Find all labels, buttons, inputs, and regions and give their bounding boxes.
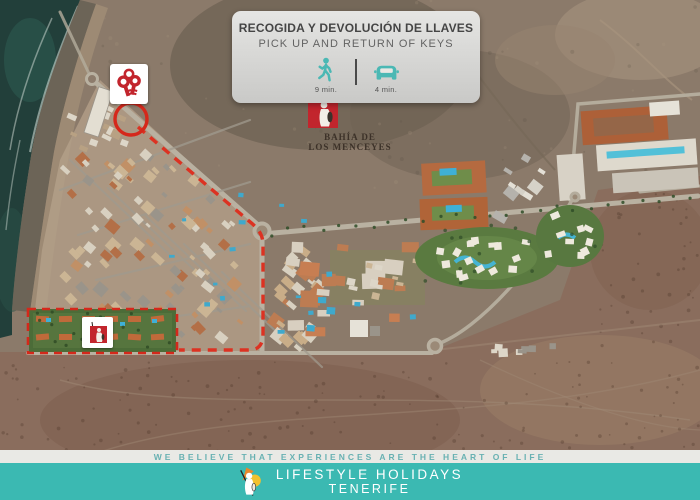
map-art [501,50,503,52]
map-art [409,403,411,405]
map-art [443,229,447,233]
map-art [160,62,163,65]
map-art [463,407,465,409]
map-art [494,242,502,250]
map-art [359,395,361,397]
map-art [238,377,240,379]
map-art [500,446,503,449]
map-art [354,302,360,307]
map-art [102,45,105,48]
map-art [445,362,448,365]
walk-time: 9 min. [315,85,337,94]
map-art [690,290,692,292]
map-art [602,249,604,251]
map-art [238,193,243,198]
map-art [508,265,517,273]
map-art [361,362,364,365]
car-icon [373,62,400,82]
map-art [578,383,581,386]
map-art [610,305,612,307]
map-art [389,314,400,322]
map-art [314,399,318,403]
map-art [638,436,642,440]
map-art [128,334,141,341]
map-art [314,384,318,388]
map-art [57,427,61,431]
map-art [520,442,523,445]
map-art [239,220,246,224]
map-art [505,401,508,404]
map-art [171,376,173,378]
brand-strip: LIFESTYLE HOLIDAYS TENERIFE [0,463,700,500]
map-art [400,157,404,161]
map-art [302,425,304,427]
map-art [586,396,588,398]
map-art [122,326,125,329]
map-art [641,289,644,292]
map-art [518,349,527,354]
map-art [129,409,132,412]
map-art [611,385,614,388]
map-art [683,446,685,448]
map-art [218,164,220,166]
map-art [673,402,675,404]
map-art [623,443,625,445]
map-art [302,225,305,228]
map-art [50,323,53,326]
map-art [455,213,458,216]
map-art [286,425,290,429]
map-art [67,379,69,381]
map-art [685,216,688,219]
map-art [227,410,230,413]
map-art [626,311,629,314]
map-art [638,232,641,235]
map-art [535,61,539,65]
map-art [130,312,133,315]
map-art [550,147,553,150]
map-art [377,395,380,398]
map-art [677,324,679,326]
map-art [124,368,128,372]
map-art [322,392,324,394]
warrior-logo-mini-icon [87,321,109,345]
map-art [478,252,482,256]
map-art [502,159,504,161]
map-art [473,270,477,274]
map-art [621,295,625,299]
map-art [326,271,332,276]
map-art [459,281,463,285]
map-art [543,152,545,154]
map-art [394,180,398,184]
map-art [641,332,643,334]
map-art [459,236,463,240]
map-art [697,424,700,427]
map-art [636,43,639,46]
map-art [630,320,634,324]
map-art [668,293,672,297]
map-art [228,430,230,432]
map-art [621,201,624,204]
map-art [47,438,50,441]
map-art [308,406,311,409]
map-art [579,405,582,408]
map-art [649,310,652,313]
card-title-es: RECOGIDA Y DEVOLUCIÓN DE LLAVES [238,21,474,35]
map-art [415,171,419,175]
map-art [279,204,284,207]
map-art [126,393,129,396]
drive-time: 4 min. [375,85,397,94]
map-art [147,430,151,434]
map-art [658,200,661,203]
map-art [332,275,346,286]
map-art [598,434,602,438]
map-art [578,374,581,377]
map-art [382,395,385,398]
map-art [278,426,282,430]
map-art [583,151,585,153]
map-art [386,221,389,224]
map-art [299,261,320,276]
map-art [288,320,304,331]
map-art [152,319,157,323]
map-art [522,429,525,432]
map-art [257,371,261,375]
map-art [339,431,342,434]
keys-pickup-marker [110,64,148,104]
map-art [656,272,660,276]
divider [355,59,357,85]
map-art [20,423,23,426]
walking-icon [315,57,337,82]
map-art [36,387,39,390]
brand-line1: LIFESTYLE HOLIDAYS [276,467,463,482]
map-art [637,263,639,265]
map-art [46,318,51,322]
map-art [263,393,265,395]
map-art [318,297,326,303]
map-art [675,391,678,394]
map-art [120,441,123,444]
map-art [514,226,518,230]
map-art [220,418,223,421]
map-art [36,333,49,340]
map-art [668,374,671,377]
map-art [1,431,4,434]
map-art [241,439,244,442]
map-art [682,267,685,270]
map-art [182,218,186,221]
map-art [148,362,150,364]
map-art [249,406,252,409]
map-art [652,340,655,343]
map-art [599,308,601,310]
map-art [334,421,336,423]
map-art [677,268,680,271]
map-art [429,142,431,144]
map-art [600,344,603,347]
map-art [555,204,558,207]
map-art [630,446,633,449]
map-art [263,435,266,438]
map-art [435,395,438,398]
map-art [408,377,410,379]
map-art [108,60,112,64]
map-art [577,397,580,400]
brand-text: LIFESTYLE HOLIDAYS TENERIFE [276,467,463,496]
map-art [81,419,84,422]
map-art [377,284,383,289]
map-art [593,244,597,248]
map-art [146,345,149,348]
map-art [544,250,552,258]
resort-logo-line1: BAHÍA DE [300,132,400,142]
map-art [539,209,542,212]
map-art [688,197,691,200]
map-art [570,233,574,237]
map-art [301,219,307,223]
map-art [286,226,289,229]
map-art [54,340,57,343]
map-art [59,316,72,322]
map-art [373,226,376,229]
map-art [436,423,438,425]
map-art [38,319,41,322]
map-art [59,334,72,340]
map-art [118,433,120,435]
map-art [658,206,661,209]
map-art [530,269,534,273]
map-art [373,187,375,189]
resort-logo-line2: LOS MENCEYES [300,142,400,152]
map-art [230,384,233,387]
info-card: RECOGIDA Y DEVOLUCIÓN DE LLAVES PICK UP … [232,11,480,103]
map-art [404,218,407,221]
map-art [92,407,94,409]
map-art [488,214,491,217]
map-art [248,432,252,436]
map-art [677,419,679,421]
map-art [625,422,628,425]
map-art [672,195,675,198]
map-art [481,434,484,437]
map-art [692,297,694,299]
map-art [138,387,142,391]
map-art [310,431,314,435]
map-art [12,364,15,367]
map-art [337,244,349,252]
map-art [632,277,636,281]
map-art [556,362,558,364]
map-art [259,393,261,395]
map-art [590,207,593,210]
map-art [628,64,632,68]
map-art [388,155,392,159]
map-art [169,255,175,258]
map-art [669,340,672,343]
map-art [99,439,103,443]
map-art [410,314,416,319]
map-art [550,343,556,349]
map-art [690,241,692,243]
map-art [220,296,225,301]
map-art [322,409,324,411]
map-art [415,1,418,4]
map-art [521,210,524,213]
map-art [659,414,662,417]
map-art [692,443,695,446]
map-art [488,51,492,55]
map-art [75,377,78,380]
map-art [498,348,508,357]
map-art [684,245,686,247]
map-art [694,69,698,73]
map-art [402,371,405,374]
map-art [587,361,590,364]
map-art [507,48,509,50]
map-art [644,427,646,429]
map-art [166,35,169,38]
brand-logo-icon [237,466,265,497]
map-art [208,444,211,447]
map-art [128,316,141,322]
map-art [640,389,643,392]
map-art [187,380,189,382]
map-art [489,224,493,228]
map-art [527,240,531,244]
map-art [63,367,65,369]
map-art [226,389,228,391]
map-art [467,241,475,247]
map-art [432,436,435,439]
map-art [696,254,699,257]
map-art [607,203,610,206]
map-art [565,403,568,406]
map-art [523,118,527,122]
map-art [119,399,121,401]
map-art [508,119,510,121]
map-art [83,386,85,388]
map-art [322,382,326,386]
map-art [505,214,508,217]
map-art [695,366,699,370]
map-art [534,373,536,375]
map-art [270,234,273,237]
map-art [306,325,314,332]
map-art [4,371,7,374]
travel-modes: 9 min. 4 min. [238,58,474,94]
map-art [679,222,682,225]
map-art [274,362,276,364]
map-art [234,408,236,410]
map-art [693,5,697,9]
map-art [373,375,376,378]
map-art [213,283,217,286]
map-art [601,323,603,325]
map-art [495,56,498,59]
map-art [572,386,574,388]
map-art [458,434,460,436]
map-art [609,434,611,436]
map-art [120,376,123,379]
map-art [204,302,210,306]
walk-mode: 9 min. [299,58,353,94]
map-art [120,322,125,326]
map-art [663,193,665,195]
map-art [450,236,454,240]
map-art [617,216,621,220]
map-art [436,247,444,255]
map-art [575,434,578,437]
map-art [452,439,456,443]
map-art [72,332,75,335]
map-art [137,329,140,332]
resort-marker [82,317,113,348]
map-art [428,377,432,381]
map-art [115,42,119,46]
map-art [568,446,571,449]
map-art [171,393,175,397]
map-art [661,430,664,433]
keys-icon [114,67,144,101]
map-art [168,341,171,344]
map-art [473,216,476,219]
map-art [617,212,620,215]
map-art [229,247,235,252]
map-art [654,415,656,417]
map-art [678,427,681,430]
map-art [185,132,187,134]
map-art [51,310,54,313]
promo-map-poster: BAHÍA DE LOS MENCEYES RECOGIDA Y DEVOLUC… [0,0,700,500]
map-art [337,224,340,227]
map-art [458,267,462,271]
map-art [441,260,450,269]
tagline-strip: WE BELIEVE THAT EXPERIENCES ARE THE HEAR… [0,450,700,463]
map-art [137,421,140,424]
map-art [577,252,584,259]
map-art [64,344,67,347]
map-art [243,401,246,404]
map-art [108,36,112,40]
map-art [15,368,17,370]
map-art [242,108,244,110]
map-art [293,127,296,130]
map-art [12,377,14,379]
map-art [682,384,684,386]
map-art [155,424,157,426]
map-art [187,412,190,415]
map-art [147,403,150,406]
map-art [402,242,419,252]
map-art [565,239,574,245]
map-art [570,50,574,54]
map-art [175,380,177,382]
map-art [354,224,357,227]
map-art [408,131,412,135]
map-art [93,443,95,445]
map-art [308,310,314,315]
map-art [655,193,657,195]
map-art [493,441,495,443]
brand-line2: TENERIFE [276,482,463,496]
map-art [278,330,285,334]
map-art [509,439,511,441]
map-art [296,411,299,414]
map-art [672,208,674,210]
